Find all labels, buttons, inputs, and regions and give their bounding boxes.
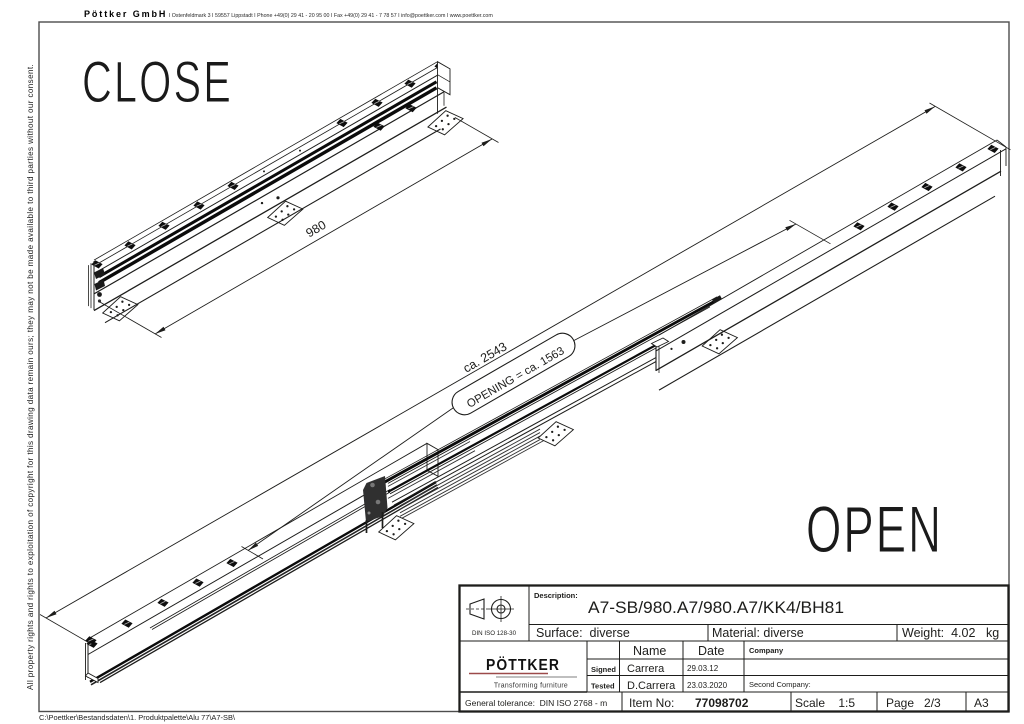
svg-text:DIN ISO 128-30: DIN ISO 128-30 (472, 630, 517, 637)
svg-text:Second Company:: Second Company: (749, 680, 811, 689)
svg-text:Scale 1:5: Scale 1:5 (795, 696, 855, 710)
svg-text:D.Carrera: D.Carrera (627, 680, 676, 692)
svg-text:General tolerance: DIN ISO 27: General tolerance: DIN ISO 2768 - m (465, 698, 607, 708)
svg-text:Transforming furniture: Transforming furniture (494, 683, 568, 690)
svg-text:Name: Name (633, 644, 666, 658)
svg-text:Date: Date (698, 644, 724, 658)
svg-text:All property rights and rights: All property rights and rights to exploi… (26, 64, 35, 690)
svg-text:Item No:: Item No: (629, 696, 674, 710)
svg-text:Description:: Description: (534, 591, 578, 600)
svg-text:CLOSE: CLOSE (82, 50, 233, 115)
svg-text:Carrera: Carrera (627, 663, 665, 675)
svg-text:kg: kg (986, 626, 999, 640)
svg-text:A7-SB/980.A7/980.A7/KK4/BH81: A7-SB/980.A7/980.A7/KK4/BH81 (588, 599, 844, 617)
svg-text:C:\Poettker\Bestandsdaten\1. P: C:\Poettker\Bestandsdaten\1. Produktpale… (39, 715, 235, 722)
svg-text:29.03.12: 29.03.12 (687, 664, 719, 673)
svg-text:Tested: Tested (591, 682, 615, 691)
svg-text:OPEN: OPEN (806, 492, 943, 566)
svg-text:PÖTTKER: PÖTTKER (486, 657, 560, 674)
svg-text:Company: Company (749, 646, 784, 655)
svg-text:Material: diverse: Material: diverse (712, 626, 804, 640)
svg-text:77098702: 77098702 (695, 696, 749, 710)
svg-text:Weight: 4.02: Weight: 4.02 (902, 626, 975, 640)
svg-text:Page 2/3: Page 2/3 (886, 696, 941, 710)
svg-text:Surface: diverse: Surface: diverse (536, 626, 630, 640)
svg-text:A3: A3 (974, 696, 989, 710)
svg-text:23.03.2020: 23.03.2020 (687, 681, 728, 690)
svg-text:Signed: Signed (591, 665, 616, 674)
